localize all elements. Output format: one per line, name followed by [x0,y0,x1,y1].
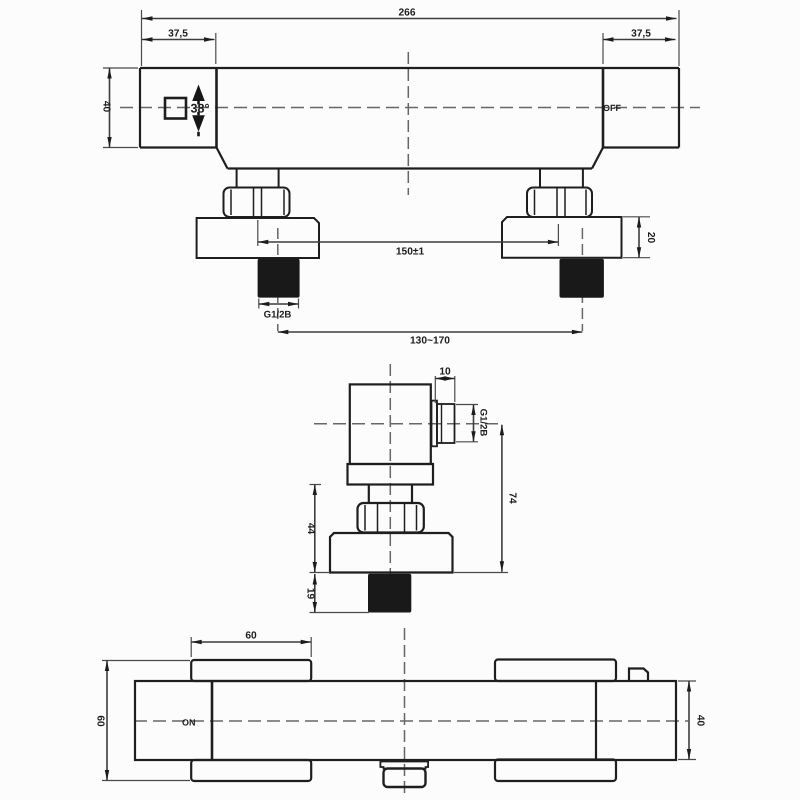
svg-text:130~170: 130~170 [410,336,450,347]
svg-text:OFF: OFF [603,103,621,113]
svg-text:40: 40 [695,715,706,727]
svg-text:37,5: 37,5 [631,29,651,40]
svg-text:G1/2B: G1/2B [264,310,292,321]
svg-text:74: 74 [507,492,518,504]
svg-text:37,5: 37,5 [168,29,188,40]
svg-text:G1/2B: G1/2B [478,409,489,437]
svg-text:20: 20 [645,232,656,244]
svg-text:40: 40 [101,101,112,113]
svg-text:44: 44 [305,523,316,535]
svg-text:38°: 38° [191,102,210,116]
svg-text:ON: ON [182,718,196,728]
svg-text:10: 10 [439,367,451,378]
svg-text:266: 266 [399,8,416,19]
svg-text:19: 19 [305,588,316,600]
svg-text:60: 60 [95,715,106,727]
svg-text:60: 60 [245,631,257,642]
svg-text:150±1: 150±1 [396,247,425,258]
